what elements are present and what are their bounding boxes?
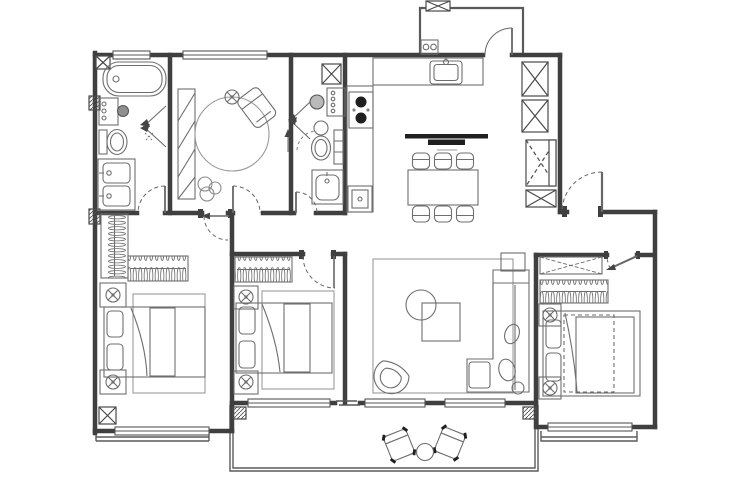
room-bedroom-2 bbox=[234, 257, 334, 394]
master-bay-sill bbox=[541, 431, 637, 441]
duct-shaft bbox=[322, 64, 341, 84]
bathroom-1-door bbox=[138, 186, 165, 213]
dining-chair bbox=[435, 153, 452, 169]
foyer-tall-cabinet bbox=[526, 140, 556, 186]
foyer-cabinet-1 bbox=[522, 62, 548, 96]
balcony-column-left bbox=[233, 407, 246, 419]
round-rug bbox=[195, 97, 269, 171]
throw-pillows bbox=[496, 322, 524, 394]
bookshelf bbox=[178, 89, 195, 199]
room-master-bedroom bbox=[539, 257, 640, 399]
room-bedroom-1 bbox=[100, 214, 205, 394]
double-bed bbox=[543, 311, 640, 396]
lamp-icon bbox=[106, 288, 120, 302]
room-balcony bbox=[381, 424, 467, 464]
bathroom-1-window bbox=[113, 51, 150, 59]
dining-table bbox=[408, 170, 478, 205]
bedroom-2-door bbox=[303, 256, 335, 288]
entry-door bbox=[562, 172, 602, 212]
room-living-room bbox=[368, 253, 529, 400]
master-bedroom-door bbox=[606, 256, 637, 270]
room-dining-area bbox=[408, 153, 478, 222]
dining-chair bbox=[413, 206, 430, 222]
dishwasher bbox=[348, 186, 372, 212]
master-bedroom-bay-window bbox=[548, 423, 632, 431]
wash-basin bbox=[312, 170, 343, 204]
wall-column-left-2 bbox=[89, 209, 100, 224]
walls bbox=[95, 53, 655, 433]
master-jamb-left bbox=[604, 251, 608, 259]
corner-column-bottom-left bbox=[99, 407, 116, 424]
lamp-icon bbox=[543, 381, 557, 395]
wall-column-left-1 bbox=[89, 96, 100, 110]
shelf bbox=[334, 130, 343, 164]
washer-drum bbox=[310, 95, 324, 109]
bathtub bbox=[103, 62, 166, 96]
room-utility-balcony bbox=[421, 40, 438, 54]
foyer-shoe-cabinet bbox=[526, 190, 556, 207]
washing-machine bbox=[421, 40, 438, 54]
lamp-icon bbox=[239, 375, 253, 389]
bedroom-1-window bbox=[115, 427, 209, 435]
counter-top bbox=[373, 58, 483, 85]
area-rug bbox=[133, 294, 205, 393]
dining-chair bbox=[457, 153, 474, 169]
study-window bbox=[183, 51, 267, 59]
low-cabinet bbox=[540, 257, 602, 274]
dining-chair bbox=[457, 206, 474, 222]
floor-plan-canvas bbox=[0, 0, 740, 494]
double-sink-vanity bbox=[98, 159, 135, 210]
dining-chair bbox=[435, 206, 452, 222]
round-side-table bbox=[417, 444, 434, 461]
master-jamb-right bbox=[636, 251, 640, 259]
outdoor-chair bbox=[381, 426, 416, 464]
outdoor-chair bbox=[432, 424, 467, 462]
kitchen-sink bbox=[430, 57, 462, 84]
vanity-counter bbox=[327, 88, 345, 116]
utility-balcony-wall bbox=[420, 8, 523, 55]
bedroom1-jamb-left bbox=[198, 209, 203, 218]
bedroom-1-door bbox=[201, 213, 229, 240]
toilet bbox=[312, 121, 331, 160]
two-burner-cooktop bbox=[349, 92, 373, 128]
area-rug bbox=[373, 259, 513, 393]
living-room-window-left bbox=[365, 399, 425, 407]
balcony-column-right bbox=[523, 407, 536, 419]
roof-shaft-box bbox=[426, 1, 450, 11]
lamp-icon bbox=[239, 290, 253, 304]
shower-spray-icon bbox=[140, 106, 166, 147]
area-rug bbox=[262, 291, 334, 389]
utility-balcony-door bbox=[485, 28, 512, 55]
toilet bbox=[99, 130, 127, 155]
double-bed bbox=[236, 303, 332, 373]
lounge-chair bbox=[236, 86, 278, 130]
study-door bbox=[233, 186, 260, 213]
entry-jamb-left bbox=[562, 206, 567, 217]
floor-plan-drawing bbox=[0, 0, 740, 494]
bathroom-2-door bbox=[296, 192, 317, 213]
room-bathroom-2 bbox=[285, 88, 346, 204]
round-coffee-table bbox=[406, 290, 436, 320]
linear-pendant-light bbox=[405, 134, 488, 150]
dining-chair bbox=[413, 153, 430, 169]
washing-machine bbox=[99, 98, 118, 125]
plant bbox=[198, 177, 221, 201]
foyer-cabinet-2 bbox=[522, 100, 548, 132]
stool bbox=[118, 106, 129, 117]
balcony-sliding-door bbox=[336, 401, 360, 405]
double-bed bbox=[104, 307, 205, 377]
room-kitchen bbox=[347, 57, 488, 212]
living-room-window-right bbox=[445, 399, 505, 407]
bedroom-2-window bbox=[248, 399, 330, 407]
room-study-cloakroom bbox=[178, 86, 278, 201]
square-coffee-table bbox=[422, 303, 460, 341]
